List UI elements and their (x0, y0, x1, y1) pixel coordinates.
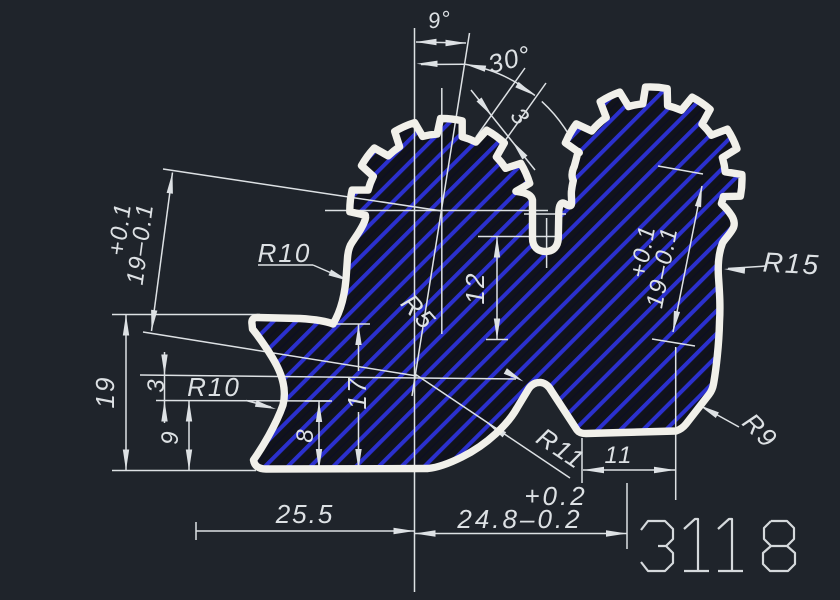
svg-text:11: 11 (605, 442, 634, 469)
svg-text:9: 9 (157, 429, 184, 444)
svg-text:3: 3 (143, 377, 170, 392)
svg-text:25.5: 25.5 (275, 499, 335, 529)
svg-text:R10: R10 (258, 238, 312, 268)
svg-text:8: 8 (292, 427, 319, 442)
svg-text:9°: 9° (426, 6, 453, 34)
svg-text:R10: R10 (187, 372, 241, 402)
svg-text:+0.2: +0.2 (524, 481, 587, 511)
svg-text:19: 19 (90, 376, 120, 409)
svg-text:17: 17 (342, 377, 372, 410)
svg-text:R15: R15 (762, 247, 821, 281)
svg-text:12: 12 (460, 272, 490, 305)
